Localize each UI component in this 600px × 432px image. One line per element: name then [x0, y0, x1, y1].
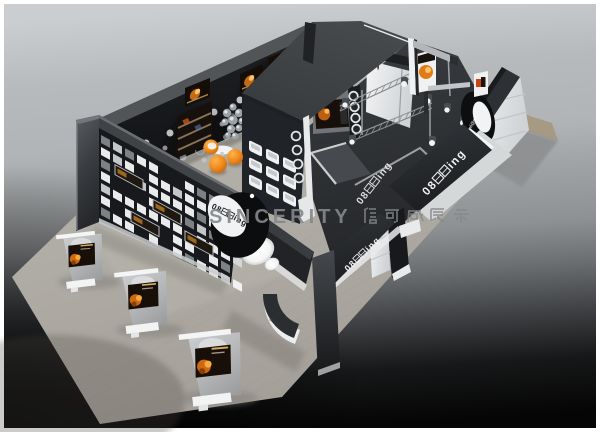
svg-text:SINCERITY: SINCERITY — [209, 206, 352, 228]
